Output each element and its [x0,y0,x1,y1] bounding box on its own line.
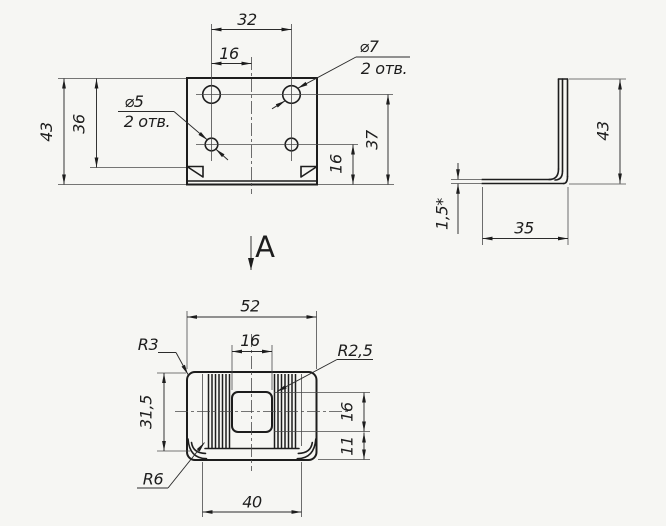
dim-opening-height: 16 [338,402,357,422]
dim-height: 43 [37,122,56,142]
side-view-outline [482,79,568,184]
small-hole-quantity: 2 отв. [124,112,171,131]
front-view: 32 16 43 36 37 16 ⌀5 2 отв. ⌀7 2 отв. [37,10,410,194]
dim-top-holes: 37 [363,129,382,150]
dim-to-bend: 36 [70,114,89,134]
dim-hole-spacing: 32 [237,10,257,29]
side-view-dimensions: 43 35 1,5* [433,79,627,245]
bottom-view-serrations [209,374,296,448]
dim-depth: 31,5 [137,395,156,429]
dim-opening-width: 16 [240,331,260,350]
dim-width: 52 [240,297,260,316]
drawing-sheet: 32 16 43 36 37 16 ⌀5 2 отв. ⌀7 2 отв. [0,0,666,526]
radius-corner-label: R3 [138,335,159,354]
front-view-dimensions: 32 16 43 36 37 16 [37,10,394,185]
bottom-view-centerlines [175,334,349,471]
large-hole-quantity: 2 отв. [361,59,408,78]
dim-hole-to-center: 16 [219,44,239,63]
dim-flange-depth: 35 [514,219,534,238]
large-hole-diameter: ⌀7 [359,37,379,56]
view-direction-marker: А [251,230,275,270]
radius-opening-label: R2,5 [338,341,373,360]
view-a-label: А [255,230,275,264]
small-hole-diameter: ⌀5 [124,92,143,111]
dim-flange-width: 40 [242,493,262,512]
dim-thickness: 1,5* [433,198,452,230]
dim-side-height: 43 [594,121,613,141]
front-view-outline [187,78,317,185]
radius-bend-label: R6 [143,470,164,489]
engineering-drawing: 32 16 43 36 37 16 ⌀5 2 отв. ⌀7 2 отв. [0,0,666,526]
side-view: 43 35 1,5* [433,79,627,245]
dim-edge-to-opening: 11 [338,436,357,456]
large-hole-callout: ⌀7 2 отв. [272,37,410,109]
bottom-view: 52 16 31,5 16 11 40 R3 R2,5 [137,297,374,518]
dim-bottom-holes: 16 [327,154,346,174]
